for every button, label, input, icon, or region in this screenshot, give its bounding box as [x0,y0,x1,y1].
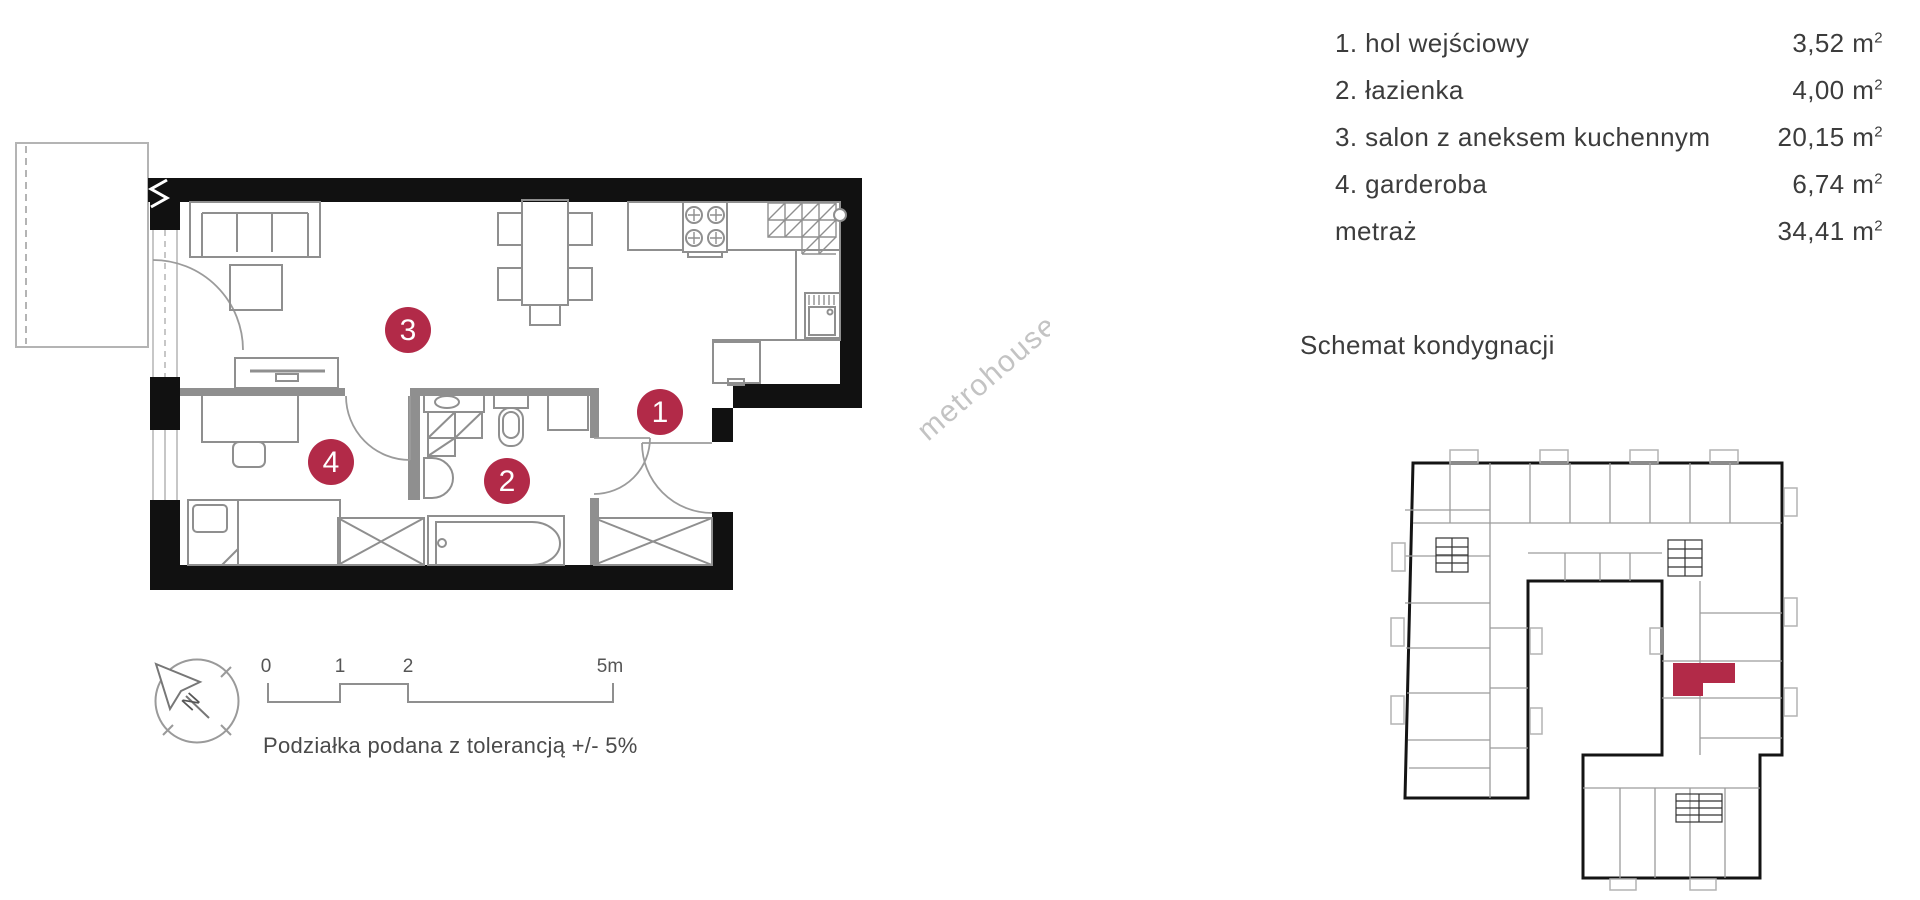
desk-icon [202,395,298,442]
room-marker-1: 1 [637,389,683,435]
scale-bar: 0 1 2 5m Podziałka podana z tolerancją +… [261,656,638,758]
chair-icon [233,442,265,467]
room-marker-3: 3 [385,307,431,353]
wardrobe-icon [338,518,424,565]
dining-table-icon [498,200,592,325]
legend-row: 1. hol wejściowy 3,52 m2 [1335,28,1883,75]
washing-machine-icon [428,412,482,456]
room-marker-4: 4 [308,439,354,485]
tv-sideboard-icon [235,358,338,388]
legend-row: 3. salon z aneksem kuchennym 20,15 m2 [1335,122,1883,169]
section-title: Schemat kondygnacji [1300,330,1555,361]
room-label: 3. salon z aneksem kuchennym [1335,122,1710,153]
interior-walls [180,388,599,565]
svg-text:4: 4 [323,446,340,479]
hall-wardrobe-icon [594,518,712,565]
kitchen-counter [628,202,840,250]
room-area: 20,15 m2 [1777,122,1883,153]
toilet-icon [494,393,528,446]
svg-text:2: 2 [499,465,516,498]
worktop-hatch [768,203,836,254]
furniture [188,200,846,565]
balcony [16,143,148,347]
page: { "legend": { "items": [ {"label": "1. h… [0,0,1920,900]
scale-0: 0 [261,656,272,677]
legend-row-total: metraż 34,41 m2 [1335,216,1883,263]
room-area: 3,52 m2 [1792,28,1883,59]
scale-1: 1 [335,656,346,677]
room-label: 1. hol wejściowy [1335,28,1529,59]
bath-cabinet-icon [548,393,588,430]
room-area: 6,74 m2 [1792,169,1883,200]
bed-icon [188,500,340,565]
sofa-icon [190,202,320,257]
total-label: metraż [1335,216,1417,247]
coffee-table-icon [230,265,282,310]
svg-text:3: 3 [400,314,417,347]
fridge-icon [713,342,760,385]
room-legend: 1. hol wejściowy 3,52 m2 2. łazienka 4,0… [1335,28,1883,263]
stove-icon [683,202,727,257]
room-label: 4. garderoba [1335,169,1487,200]
floor-plan: 1 2 3 4 N 0 1 2 5m Podziałka podana z to… [0,0,1050,900]
window-lines [153,230,177,500]
scale-5m: 5m [597,656,623,677]
total-area: 34,41 m2 [1777,216,1883,247]
scale-tolerance-note: Podziałka podana z tolerancją +/- 5% [263,733,638,758]
floor-schematic [1390,448,1810,893]
room-label: 2. łazienka [1335,75,1464,106]
legend-row: 4. garderoba 6,74 m2 [1335,169,1883,216]
legend-row: 2. łazienka 4,00 m2 [1335,75,1883,122]
scale-2: 2 [403,656,414,677]
round-sink-icon [834,209,846,221]
svg-text:1: 1 [652,396,669,429]
watermark: metrohouse [911,309,1050,448]
bathtub-icon [428,516,564,565]
room-area: 4,00 m2 [1792,75,1883,106]
room-marker-2: 2 [484,458,530,504]
corner-basin-icon [424,458,453,498]
sink-unit-icon [805,293,840,338]
door-arcs [153,260,712,513]
room-markers: 1 2 3 4 [308,307,683,504]
